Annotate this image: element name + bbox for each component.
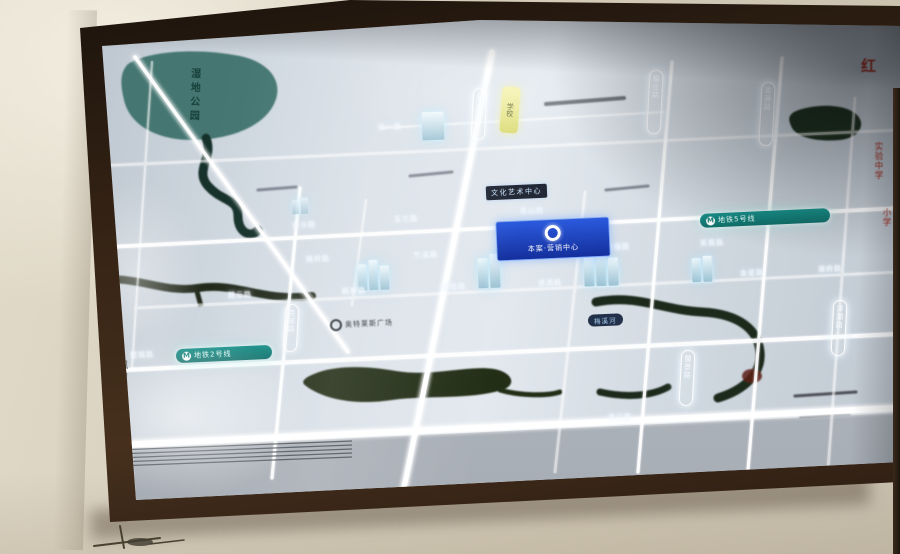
metro-line-5-label: 地铁5号线	[718, 213, 756, 225]
river-name-pill: 梅溪河	[588, 313, 623, 326]
street-label: 梅岭路	[306, 253, 330, 264]
road-pill-label: 青莲路	[763, 87, 772, 111]
red-landmark-label: 实验中学	[872, 142, 884, 180]
culture-center-label: 文化艺术中心	[486, 184, 548, 201]
vertical-road-pill: 洋湖路	[831, 300, 848, 357]
boulevard-south	[55, 408, 900, 448]
street-label: 金星路	[740, 267, 764, 278]
street-label: 望岳路	[442, 281, 466, 292]
metro-icon: M	[182, 351, 191, 360]
building-cluster	[422, 112, 445, 141]
photo-scene: 纬一路 金沙路 玉兰路 青山路 梅岭路 竹溪路 银杉路 紫薇路 芙蓉路 麓云路 …	[0, 0, 900, 554]
metro-line-2-label: 地铁2号线	[194, 349, 232, 361]
street-label: 芙蓉路	[700, 237, 724, 248]
street-label: 纬一路	[378, 121, 402, 132]
river-west	[90, 280, 312, 298]
road-pill-label: 麓景路	[683, 355, 692, 379]
red-landmark-label: 小学	[880, 208, 892, 227]
building-cluster	[692, 256, 713, 283]
building-icon	[380, 265, 390, 289]
red-landmark-char: 红	[861, 55, 876, 76]
street-label: 青山路	[520, 205, 544, 216]
vertical-road-pill: 观云路	[471, 88, 488, 141]
wall-sketch	[88, 520, 198, 554]
building-icon	[692, 258, 702, 282]
river-north	[203, 138, 258, 234]
road-pill-label: 观云路	[475, 93, 484, 117]
river-south	[303, 367, 511, 402]
building-cluster	[292, 198, 309, 215]
river-south-tail	[500, 390, 560, 395]
street-label: 玉兰路	[394, 213, 418, 224]
building-icon	[301, 198, 309, 214]
building-icon	[368, 260, 378, 290]
school-marker: 学校	[499, 86, 520, 133]
wall-sketch-blob	[127, 538, 153, 546]
building-icon	[422, 112, 445, 141]
metro-icon: M	[706, 216, 715, 225]
street-label: 金沙路	[292, 219, 316, 230]
street-label: 枫林路	[342, 285, 366, 296]
frame-right-edge	[893, 88, 900, 554]
river-east-branch	[600, 387, 668, 395]
building-icon	[584, 256, 595, 286]
plaza-logo-icon	[330, 319, 343, 332]
red-roof-patch	[742, 369, 762, 383]
road-pill-label: 连湖路	[287, 309, 296, 333]
building-icon	[478, 258, 489, 288]
building-icon	[608, 257, 619, 285]
road-pill-label: 振业路	[651, 75, 660, 99]
park-name-label: 湿地公园	[185, 68, 202, 124]
street-label: 滨江路	[608, 411, 632, 422]
project-badge-label: 本案·营销中心	[528, 242, 580, 254]
project-logo-icon	[544, 225, 561, 242]
street-label: 湘府路	[818, 263, 842, 274]
building-icon	[292, 200, 299, 214]
school-marker-label: 学校	[505, 103, 516, 118]
building-icon	[703, 256, 713, 282]
street-label: 麓云路	[228, 289, 252, 300]
street-label: 潇湘路	[538, 277, 562, 288]
plaza-label-text: 奥特莱斯广场	[345, 318, 393, 330]
project-location-badge: 本案·营销中心	[495, 217, 611, 262]
street-label: 竹溪路	[414, 249, 438, 260]
road-pill-label: 洋湖路	[835, 305, 844, 329]
vertical-road-pill: 连湖路	[283, 304, 299, 353]
vertical-road-pill: 麓景路	[679, 350, 696, 407]
street-label: 望城路	[130, 349, 154, 360]
